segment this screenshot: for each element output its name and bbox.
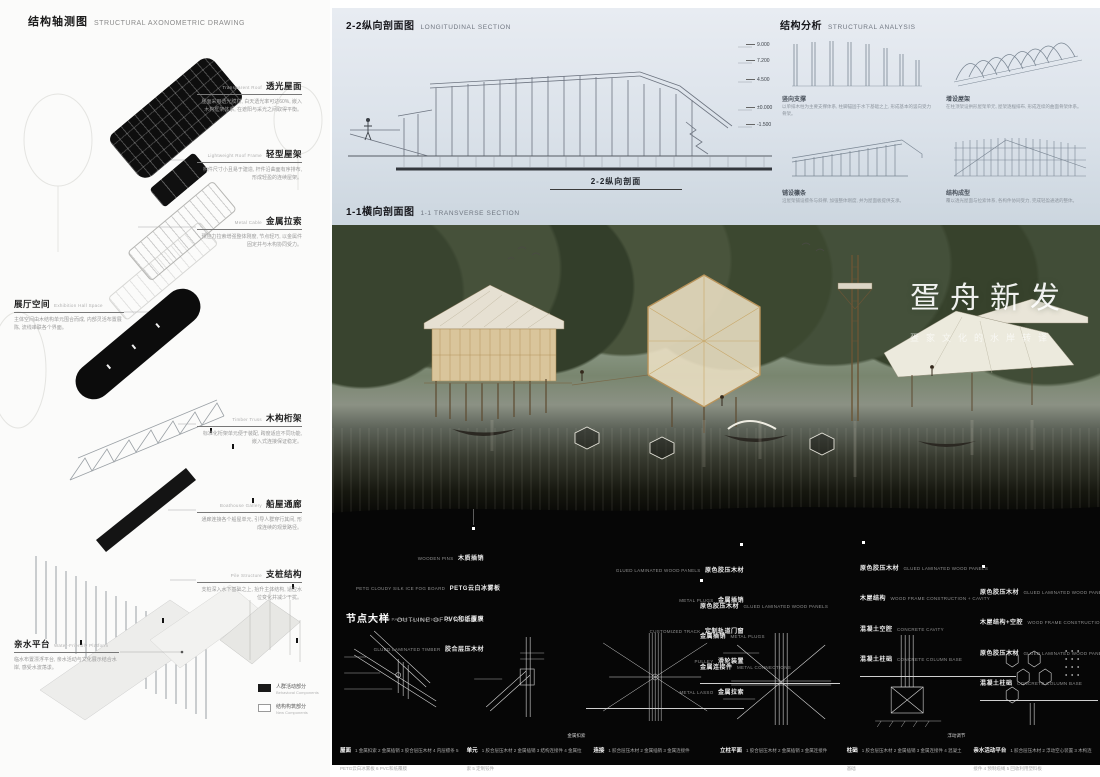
- node-drawing-base: [845, 629, 965, 733]
- sa-step-label: 铺设檩条: [782, 188, 932, 197]
- observation-tower: [838, 255, 872, 421]
- sa-step-label: 竖向支撑: [782, 94, 932, 103]
- sa-step-2-drawing: [946, 34, 1096, 92]
- annotation-en: Water-Friendly Platform: [54, 643, 108, 648]
- node-drawing-platform: [972, 629, 1092, 733]
- sa-step-4: 结构成型 覆以透光屋面与拉索体系, 各构件协同受力, 完成轻盈通透的整体。: [946, 128, 1096, 205]
- annotation-desc: 构件尺寸小且易于建造, 杆件沿曲面有序排布, 形成轻盈的连续屋架。: [197, 166, 302, 182]
- annotation-timber-truss: Timber Truss木构桁架 标准化桁架单元便于装配, 跨度适应不同功能, …: [197, 412, 302, 446]
- longitudinal-section-drawing: [340, 30, 780, 180]
- pavilion-buildings: [332, 225, 1100, 515]
- annotation-zh: 轻型屋架: [266, 148, 302, 160]
- details-band: WOODEN PINS 木质插销 PETG CLOUDY SILK ICE FO…: [332, 515, 1100, 765]
- node-legend-column-plan: 立柱平面1 胶合层压木材 2 金属插销 3 金属连接件: [720, 739, 839, 775]
- sa-step-1: 竖向支撑 以单排木柱为主要支撑体系, 柱脚锚固于水下基础之上, 形成基本的竖向受…: [782, 34, 932, 118]
- annotation-zh: 金属拉索: [266, 215, 302, 227]
- node-legend-roof: 屋面1 金属扣索 2 金属插销 3 胶合层压木材 4 内层檩条 5 PETG云白…: [340, 739, 459, 775]
- elevation-label: 9.000: [746, 42, 770, 48]
- node-drawings: [340, 629, 1092, 733]
- node-legend-connection: 连接1 胶合层压木材 2 金属插销 3 金属连接件: [593, 739, 712, 775]
- sa-step-desc: 以单排木柱为主要支撑体系, 柱脚锚固于水下基础之上, 形成基本的竖向受力骨架。: [782, 104, 932, 118]
- annotation-zh: 木构桁架: [266, 412, 302, 424]
- transverse-title-zh: 1-1横向剖面图: [346, 207, 414, 218]
- annotation-transparent-roof: Transparent Roof透光屋面 屋面采用透光膜材, 白天透光率可达60…: [197, 80, 302, 114]
- annotation-exhibition-space: 展厅空间Exhibition Hall Space 主体空间由木结构单元围合而成…: [14, 298, 124, 332]
- sa-step-3-drawing: [782, 128, 932, 186]
- legend-en: New Components: [276, 710, 308, 715]
- callout-dot: [472, 527, 475, 530]
- left-pavilion: [424, 285, 572, 421]
- node-legend-unit: 金属扣索 单元1 胶合层压木材 2 金属插销 3 结构连接件 4 金属拉索 5 …: [467, 739, 586, 775]
- right-panel: 2-2纵向剖面图LONGITUDINAL SECTION 9.00: [332, 0, 1100, 777]
- node-drawing-connection: [593, 629, 713, 733]
- sa-step-4-drawing: [946, 128, 1096, 186]
- sa-title-zh: 结构分析: [780, 21, 822, 32]
- callout-dot: [740, 543, 743, 546]
- legend-note: 金属扣索: [567, 733, 585, 739]
- callout-dot: [862, 541, 865, 544]
- node-title-zh: 节点大样: [346, 614, 390, 625]
- annotation-desc: 标准化桁架单元便于装配, 跨度适应不同功能, 嵌入式连接保证稳定。: [197, 430, 302, 446]
- components-legend: 人群活动部分Behavioral Components 结构构筑部分New Co…: [258, 683, 324, 723]
- node-drawing-roof: [340, 629, 460, 733]
- annotation-en: Metal Cable: [235, 220, 262, 225]
- black-swatch-icon: [258, 684, 271, 692]
- annotation-en: Boathouse Gallery: [220, 503, 262, 508]
- sa-step-desc: 覆以透光屋面与拉索体系, 各构件协同受力, 完成轻盈通透的整体。: [946, 198, 1096, 205]
- callout-line: [473, 509, 474, 525]
- annotation-desc: 通廊连接各个船屋单元, 引导人群穿行其间, 形成连续的观景路径。: [197, 516, 302, 532]
- annotation-en: Timber Truss: [232, 417, 262, 422]
- annotation-zh: 亲水平台: [14, 638, 50, 650]
- annotation-desc: 屋面采用透光膜材, 白天透光率可达60%, 嵌入木构框架体系, 在遮阳与采光之间…: [197, 98, 302, 114]
- structural-analysis-grid: 竖向支撑 以单排木柱为主要支撑体系, 柱脚锚固于水下基础之上, 形成基本的竖向受…: [782, 34, 1096, 204]
- elevation-label: ±0.000: [746, 105, 772, 111]
- annotation-zh: 展厅空间: [14, 298, 50, 310]
- annotation-zh: 透光屋面: [266, 80, 302, 92]
- sa-step-label: 结构成型: [946, 188, 1096, 197]
- project-subtitle: 疍家文化的水岸转译: [910, 331, 1070, 344]
- left-panel: 结构轴测图STRUCTURAL AXONOMETRIC DRAWING: [0, 0, 330, 777]
- annotation-desc: 临水布置漂浮平台, 亲水活动与文化展示结合水岸, 感受水波荡漾。: [14, 656, 119, 672]
- annotation-desc: 支桩深入水下基础之上, 抬升主体结构, 适应水位变化并减少干扰。: [197, 586, 302, 602]
- sa-title-en: STRUCTURAL ANALYSIS: [828, 24, 916, 31]
- node-drawing-unit: [466, 629, 586, 733]
- annotation-en: Lightweight Roof Frame: [208, 153, 262, 158]
- elevation-label: 4.500: [746, 77, 770, 83]
- legend-en: Behavioral Components: [276, 690, 319, 695]
- elevation-label: -1.500: [746, 122, 771, 128]
- hexagon-pavilion: [648, 275, 760, 433]
- annotation-boathouse-gallery: Boathouse Gallery船屋通廊 通廊连接各个船屋单元, 引导人群穿行…: [197, 498, 302, 532]
- annotation-waterfront-platform: 亲水平台Water-Friendly Platform 临水布置漂浮平台, 亲水…: [14, 638, 119, 672]
- node-legend-platform: 亲水活动平台1 胶合层压木材 2 浮动空心装置 3 木构连接件 4 预制缆绳 5…: [973, 739, 1092, 775]
- sa-step-label: 增设屋架: [946, 94, 1096, 103]
- birds-icon: [508, 243, 824, 259]
- annotation-metal-cable: Metal Cable金属拉索 预应力拉索增强整体刚度, 节点轻巧, 以金属件固…: [197, 215, 302, 249]
- legend-zh: 结构构筑部分: [276, 703, 308, 710]
- boat-canopy: [728, 421, 776, 429]
- reflection-streaks: [492, 420, 1032, 477]
- figure-icon: [131, 344, 136, 349]
- transverse-title-en: 1-1 TRANSVERSE SECTION: [420, 210, 519, 217]
- presentation-board: 结构轴测图STRUCTURAL AXONOMETRIC DRAWING: [0, 0, 1100, 777]
- annotation-en: Exhibition Hall Space: [54, 303, 103, 308]
- sa-step-1-drawing: [782, 34, 932, 92]
- longitudinal-caption: 2-2纵向剖面: [550, 176, 682, 190]
- annotation-desc: 主体空间由木结构单元围合而成, 内部灵活布置展陈, 流线串联各个界面。: [14, 316, 124, 332]
- annotation-zh: 支桩结构: [266, 568, 302, 580]
- legend-behavioral: 人群活动部分Behavioral Components: [258, 683, 324, 695]
- figure-icon: [106, 364, 111, 369]
- sa-step-2: 增设屋架 在柱顶架设拱形屋架单元, 屋架逐榀排布, 形成连续的曲面骨架体系。: [946, 34, 1096, 118]
- boat-hull: [452, 429, 516, 436]
- transverse-section-title: 1-1横向剖面图1-1 TRANSVERSE SECTION: [346, 202, 520, 220]
- boat-hull: [918, 441, 976, 447]
- structural-analysis-title: 结构分析STRUCTURAL ANALYSIS: [780, 16, 916, 34]
- annotation-en: Pile Structure: [231, 573, 262, 578]
- annotation-pile-structure: Pile Structure支桩结构 支桩深入水下基础之上, 抬升主体结构, 适…: [197, 568, 302, 602]
- dot-texture: [1065, 650, 1079, 676]
- annotation-desc: 预应力拉索增强整体刚度, 节点轻巧, 以金属件固定并与木构协同受力。: [197, 233, 302, 249]
- elevation-label: 7.200: [746, 58, 770, 64]
- legend-zh: 人群活动部分: [276, 683, 319, 690]
- hero-render: 疍舟新发 疍家文化的水岸转译: [332, 225, 1100, 515]
- section-person-icon: [364, 118, 372, 140]
- project-title-block: 疍舟新发 疍家文化的水岸转译: [910, 273, 1070, 344]
- node-legends: 屋面1 金属扣索 2 金属插销 3 胶合层压木材 4 内层檩条 5 PETG云白…: [340, 739, 1092, 775]
- node-title-en: OUTLINE OF A NODE: [397, 617, 476, 624]
- node-drawing-column-plan: [719, 629, 839, 733]
- boat-hull: [724, 435, 788, 442]
- node-legend-base: 浮动调节 柱础1 胶合层压木材 2 金属插销 3 金属连接件 4 混凝土基础: [847, 739, 966, 775]
- legend-note: 浮动调节: [947, 733, 965, 739]
- white-swatch-icon: [258, 704, 271, 712]
- sa-step-3: 铺设檩条 沿屋架铺设檩条与斜撑, 加强整体刚度, 并为屋面板提供支承。: [782, 128, 932, 205]
- legend-new-components: 结构构筑部分New Components: [258, 703, 324, 715]
- annotation-lightweight-frame: Lightweight Roof Frame轻型屋架 构件尺寸小且易于建造, 杆…: [197, 148, 302, 182]
- figure-icon: [155, 323, 160, 328]
- annotation-zh: 船屋通廊: [266, 498, 302, 510]
- sa-step-desc: 在柱顶架设拱形屋架单元, 屋架逐榀排布, 形成连续的曲面骨架体系。: [946, 104, 1096, 111]
- sa-step-desc: 沿屋架铺设檩条与斜撑, 加强整体刚度, 并为屋面板提供支承。: [782, 198, 932, 205]
- water-edge-wave: [332, 501, 1100, 517]
- project-title: 疍舟新发: [910, 273, 1070, 317]
- node-details-title: 节点大样OUTLINE OF A NODE: [346, 609, 476, 627]
- annotation-en: Transparent Roof: [222, 85, 262, 90]
